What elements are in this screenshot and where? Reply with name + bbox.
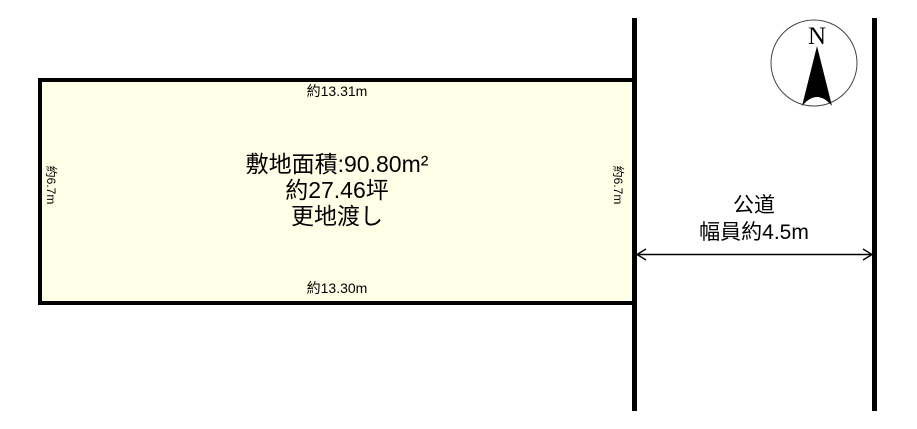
dimension-label-top: 約13.31m <box>307 83 368 99</box>
road-width: 幅員約4.5m <box>699 219 809 246</box>
road-name: 公道 <box>699 192 809 219</box>
dimension-label-right: 約6.7m <box>610 166 626 205</box>
road-label: 公道 幅員約4.5m <box>699 192 809 246</box>
compass-needle <box>802 46 832 106</box>
site-plan-diagram: 約13.31m 約13.30m 約6.7m 約6.7m 敷地面積:90.80m²… <box>0 0 917 429</box>
compass-north-label: N <box>808 23 826 50</box>
dimension-label-bottom: 約13.30m <box>307 280 368 296</box>
parcel-area-m2: 敷地面積:90.80m² <box>246 151 429 177</box>
parcel-area-tsubo: 約27.46坪 <box>246 177 429 203</box>
compass-north-icon: N <box>769 17 861 111</box>
road-width-arrow-icon <box>632 247 877 262</box>
dimension-label-left: 約6.7m <box>43 166 59 205</box>
road-edge-line-right <box>872 18 877 411</box>
road-edge-line-left <box>632 18 637 411</box>
parcel-description: 敷地面積:90.80m² 約27.46坪 更地渡し <box>246 151 429 229</box>
parcel-handover-condition: 更地渡し <box>246 203 429 229</box>
